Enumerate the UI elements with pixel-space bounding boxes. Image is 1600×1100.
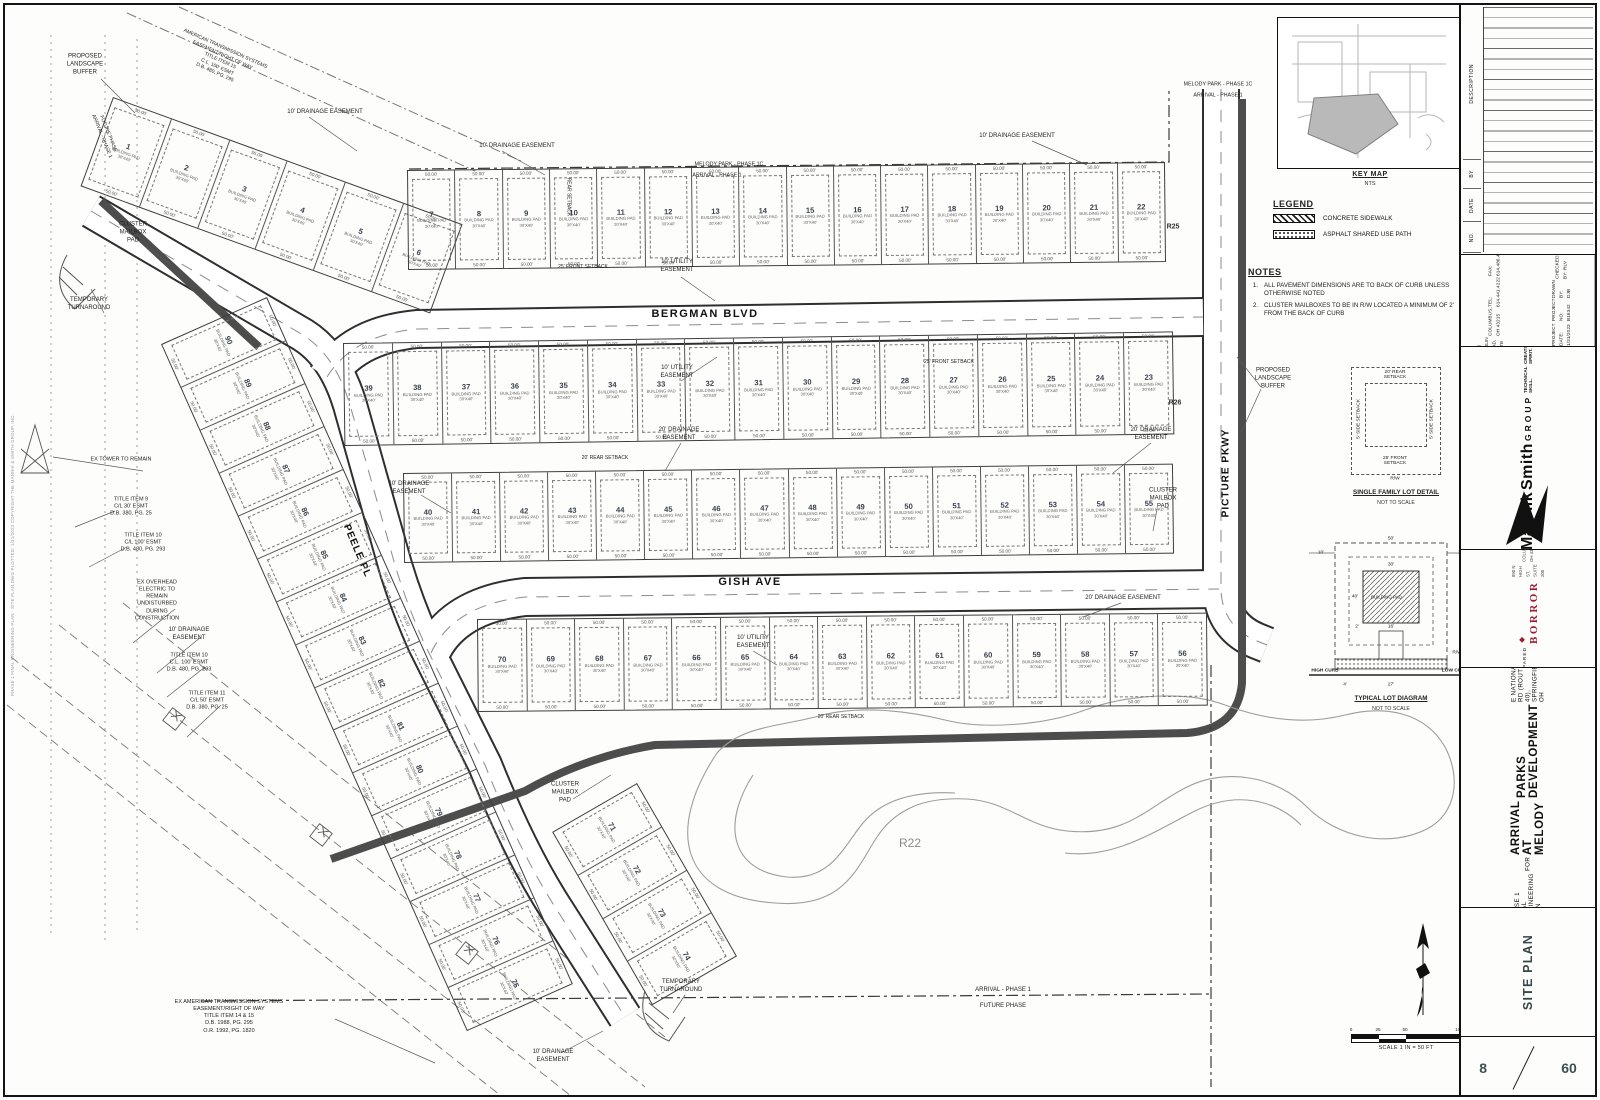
lot-dimension: 50.00' xyxy=(898,167,910,172)
lot-28: 50.00'28BUILDING PAD30'X40'50.00' xyxy=(880,336,930,438)
building-pad: 39BUILDING PAD30'X40' xyxy=(348,352,389,437)
plot-stamp-text: PHASE 1 FINAL ENGINEERING PLAN - SITE PL… xyxy=(10,414,15,696)
lot-dimension: 50.00' xyxy=(1030,616,1042,621)
basin-contours xyxy=(688,696,1455,904)
scale-bar: 02550100 SCALE 1 IN = 50 FT xyxy=(1351,1027,1461,1051)
typical-lot-scale: NOT TO SCALE xyxy=(1372,706,1410,712)
lot-dimension: 50.00' xyxy=(558,436,570,441)
building-pad-size: 30'X40' xyxy=(1093,389,1107,394)
lot-number: 44 xyxy=(616,506,625,514)
borror-shield-icon: ◆ xyxy=(1518,633,1526,644)
lot-dimension: 50.00' xyxy=(1087,165,1099,170)
lot-12: 50.00'12BUILDING PAD30'X40'50.00' xyxy=(645,168,693,266)
lot-number: 52 xyxy=(1000,501,1009,509)
rev-header: DATE xyxy=(1463,189,1481,222)
firm-field: CHECKED BY: RLV xyxy=(1553,255,1568,279)
lot-dimension: 50.00' xyxy=(851,167,863,172)
building-pad: 65BUILDING PAD30'X40' xyxy=(725,626,765,701)
lot-27: 50.00'27BUILDING PAD30'X40'50.00' xyxy=(929,335,979,437)
lot-38: 50.00'38BUILDING PAD30'X40'50.00' xyxy=(393,343,443,445)
lot-number: 51 xyxy=(952,502,961,510)
typical-lot-diagram: 50' 10' 10' 30' 40' BUILDING PAD 2' 16' … xyxy=(1305,535,1477,721)
building-pad-size: 30'X40' xyxy=(469,522,483,527)
lot-dimension: 50.00' xyxy=(662,169,674,174)
lot-53: 50.00'53BUILDING PAD30'X40'50.00' xyxy=(1029,466,1078,555)
project-title-block: PHASE 1 FINAL ENGINEERING PLAN FOR ARRIV… xyxy=(1461,668,1595,908)
building-pad-size: 30'X40' xyxy=(1087,218,1101,223)
building-pad: 14BUILDING PAD30'X40' xyxy=(743,175,782,257)
annotation: CLUSTER MAILBOX PAD xyxy=(551,781,579,804)
concrete-swatch xyxy=(1273,214,1315,223)
legend-title: LEGEND xyxy=(1273,199,1463,209)
lot-dimension: 50.00' xyxy=(422,555,434,560)
street-label-bergman: BERGMAN BLVD xyxy=(651,308,758,320)
lot-row-71-74: 50.00'71BUILDING PAD30'X40'50.00'50.00'7… xyxy=(552,783,737,1005)
building-pad: 24BUILDING PAD30'X40' xyxy=(1080,341,1121,426)
borror-address-1: 890 N HIGH ST, SUITE 200 xyxy=(1510,565,1546,578)
lot-dimension: 50.00' xyxy=(1143,427,1155,432)
building-pad-size: 30'X40' xyxy=(996,390,1010,395)
building-pad-size: 30'X40' xyxy=(517,521,531,526)
sheet-title-wrap: SITE PLAN xyxy=(1465,912,1591,1032)
lot-44: 50.00'44BUILDING PAD30'X40'50.00' xyxy=(596,471,645,560)
firm-address: 1160 DUBLIN ROAD, SUITE 100COLUMBUS, OH … xyxy=(1461,255,1528,346)
lot-dimension: 50.00' xyxy=(496,621,508,626)
lot-dimension: 50.00' xyxy=(1088,255,1100,260)
key-map xyxy=(1277,17,1465,169)
lot-number: 20 xyxy=(1042,204,1051,212)
lot-dimension: 50.00' xyxy=(470,555,482,560)
project-line-3: ARRIVAL AT MELODY xyxy=(1510,800,1546,854)
rev-header-label: DESCRIPTION xyxy=(1469,64,1475,104)
building-pad: 70BUILDING PAD30'X40' xyxy=(482,628,522,703)
building-pad: 22BUILDING PAD30'X40' xyxy=(1122,171,1161,253)
lot-63: 50.00'63BUILDING PAD30'X40'50.00' xyxy=(818,617,867,708)
lot-32: 50.00'32BUILDING PAD30'X40'50.00' xyxy=(685,339,735,441)
annotation: PROPOSED LANDSCAPE BUFFER xyxy=(67,53,103,76)
lot-54: 50.00'54BUILDING PAD30'X40'50.00' xyxy=(1077,465,1126,554)
lot-dimension: 50.00' xyxy=(998,468,1010,473)
building-pad-size: 30'X40' xyxy=(709,221,723,226)
lot-49: 50.00'49BUILDING PAD30'X40'50.00' xyxy=(837,468,886,557)
building-pad: 32BUILDING PAD30'X40' xyxy=(689,347,730,432)
lot-8: 50.00'8BUILDING PAD30'X40'50.00' xyxy=(455,170,503,268)
lot-dimension: 50.00' xyxy=(662,472,674,477)
building-pad: 57BUILDING PAD30'X40' xyxy=(1114,622,1154,697)
building-pad: 45BUILDING PAD30'X40' xyxy=(648,479,688,551)
lot-dimension: 50.00' xyxy=(709,169,721,174)
building-pad-size: 30'X40' xyxy=(519,223,533,228)
building-pad: 7BUILDING PAD30'X40' xyxy=(412,179,451,261)
building-pad-size: 30'X40' xyxy=(758,518,772,523)
lot-48: 50.00'48BUILDING PAD30'X40'50.00' xyxy=(788,469,837,558)
lot-dimension: 50.00' xyxy=(656,434,668,439)
building-pad-size: 30'X40' xyxy=(803,221,817,226)
mannik-swoosh-icon xyxy=(1498,483,1558,545)
lot-number: 28 xyxy=(901,377,910,385)
annotation: TITLE ITEM 11 C/L 50' ESMT D.B. 380, PG.… xyxy=(186,690,228,711)
lot-dimension: 50.00' xyxy=(1095,547,1107,552)
lot-detail-scale: NOT TO SCALE xyxy=(1377,500,1415,506)
lot-dimension: 50.00' xyxy=(654,340,666,345)
lot-dimension: 50.00' xyxy=(1031,700,1043,705)
lot-number: 21 xyxy=(1090,203,1099,211)
north-arrow xyxy=(1403,923,1443,1028)
lot-dimension: 50.00' xyxy=(993,166,1005,171)
building-pad-size: 30'X40' xyxy=(425,224,439,229)
lot-number: 58 xyxy=(1081,651,1090,659)
lot-37: 50.00'37BUILDING PAD30'X40'50.00' xyxy=(442,342,492,444)
sheet-number: 8 xyxy=(1479,1060,1487,1076)
lot-number: 49 xyxy=(856,503,865,511)
firm-address-line: FAX: 614.486.4387 xyxy=(1487,255,1502,276)
lot-dimension: 50.00' xyxy=(496,704,508,709)
lot-dimension: 50.00' xyxy=(1079,699,1091,704)
lot-dimension: 50.00' xyxy=(663,552,675,557)
annotation: 20' REAR SETBACK xyxy=(582,455,629,462)
dim-40: 40' xyxy=(1352,595,1358,600)
lot-dimension: 50.00' xyxy=(885,701,897,706)
lot-number: 68 xyxy=(595,655,604,663)
lot-number: 56 xyxy=(1178,650,1187,658)
lot-dimension: 50.00' xyxy=(412,438,424,443)
borror-logo-block: PREPARED FOR ◆ BORROR 890 N HIGH ST, SUI… xyxy=(1465,554,1591,663)
lot-dimension: 50.00' xyxy=(614,170,626,175)
lot-detail-setback-line xyxy=(1365,383,1427,447)
lot-58: 50.00'58BUILDING PAD30'X40'50.00' xyxy=(1061,614,1110,705)
lot-number: 25 xyxy=(1047,375,1056,383)
lot-number: 45 xyxy=(664,505,673,513)
annotation: EX OVERHEAD ELECTRIC TO REMAIN UNDISTURB… xyxy=(135,580,179,623)
lot-dimension: 50.00' xyxy=(802,432,814,437)
building-pad: 35BUILDING PAD30'X40' xyxy=(543,349,584,434)
lot-dimension: 50.00' xyxy=(997,429,1009,434)
lot-number: 63 xyxy=(838,653,847,661)
lot-dimension: 50.00' xyxy=(899,431,911,436)
lot-dimension: 50.00' xyxy=(903,549,915,554)
building-pad-size: 30'X40' xyxy=(662,519,676,524)
lot-dimension: 50.00' xyxy=(606,341,618,346)
lot-row-1-6: 50.00'1BUILDING PAD30'X40'50.00'50.00'2B… xyxy=(81,97,463,314)
building-pad-size: 30'X40' xyxy=(472,224,486,229)
building-pad: 36BUILDING PAD30'X40' xyxy=(494,350,535,435)
lot-number: 70 xyxy=(498,656,507,664)
lot-number: 15 xyxy=(806,206,815,214)
lot-detail-caption: SINGLE FAMILY LOT DETAIL xyxy=(1353,489,1439,496)
lot-dimension: 50.00' xyxy=(759,551,771,556)
lot-29: 50.00'29BUILDING PAD30'X40'50.00' xyxy=(832,336,882,438)
building-pad: 40BUILDING PAD30'X40' xyxy=(408,482,448,554)
building-pad: 28BUILDING PAD30'X40' xyxy=(884,344,925,429)
lot-47: 50.00'47BUILDING PAD30'X40'50.00' xyxy=(740,469,789,558)
building-pad: 47BUILDING PAD30'X40' xyxy=(745,478,785,550)
lot-dimension: 50.00' xyxy=(641,619,653,624)
lot-number: 43 xyxy=(568,506,577,514)
lot-42: 50.00'42BUILDING PAD30'X40'50.00' xyxy=(500,472,549,561)
lot-60: 50.00'60BUILDING PAD30'X40'50.00' xyxy=(964,615,1013,706)
lot-dimension: 50.00' xyxy=(758,471,770,476)
annotation: 10' DRAINAGE EASEMENT xyxy=(479,143,555,151)
annotation: AMERICAN TRANSMISSION SYSTEMS EASEMENT/R… xyxy=(172,28,268,95)
lot-50: 50.00'50BUILDING PAD30'X40'50.00' xyxy=(885,468,934,557)
lot-41: 50.00'41BUILDING PAD30'X40'50.00' xyxy=(452,473,501,562)
lot-dimension: 50.00' xyxy=(788,702,800,707)
lot-43: 50.00'43BUILDING PAD30'X40'50.00' xyxy=(548,472,597,561)
building-pad-size: 30'X40' xyxy=(806,518,820,523)
lot-dimension: 50.00' xyxy=(1046,429,1058,434)
lot-number: 7 xyxy=(429,210,433,218)
building-pad-label: BUILDING PAD xyxy=(1371,594,1411,599)
lot-57: 50.00'57BUILDING PAD30'X40'50.00' xyxy=(1110,614,1159,705)
project-line-4: PARKS DEVELOPMENT xyxy=(1516,704,1540,798)
annotation: TITLE ITEM 10 C.L. 100' ESMT D.B. 480, P… xyxy=(167,652,212,673)
lot-number: 46 xyxy=(712,505,721,513)
building-pad: 34BUILDING PAD30'X40' xyxy=(592,348,633,433)
lot-11: 50.00'11BUILDING PAD30'X40'50.00' xyxy=(597,169,645,267)
lot-33: 50.00'33BUILDING PAD30'X40'50.00' xyxy=(637,339,687,441)
building-pad-size: 30'X40' xyxy=(614,222,628,227)
lot-dimension: 50.00' xyxy=(1142,334,1154,339)
notes: NOTES 1.ALL PAVEMENT DIMENSIONS ARE TO B… xyxy=(1248,267,1464,321)
logo-line-3: GROUP xyxy=(1523,395,1533,441)
building-pad-size: 30'X40' xyxy=(756,221,770,226)
annotation: FUTURE PHASE xyxy=(980,1003,1026,1011)
building-pad-size: 30'X40' xyxy=(884,667,898,672)
building-pad: 55BUILDING PAD30'X40' xyxy=(1129,473,1169,545)
lot-dimension: 50.00' xyxy=(752,339,764,344)
lot-dimension: 50.00' xyxy=(946,257,958,262)
note-text: CLUSTER MAILBOXES TO BE IN R/W LOCATED A… xyxy=(1264,302,1464,319)
lot-dimension: 50.00' xyxy=(1177,699,1189,704)
lot-dimension: 50.00' xyxy=(362,345,374,350)
lot-number: 38 xyxy=(413,384,422,392)
lot-dimension: 50.00' xyxy=(704,434,716,439)
building-pad: 59BUILDING PAD30'X40' xyxy=(1017,623,1057,698)
building-pad: 31BUILDING PAD30'X40' xyxy=(738,346,779,431)
lot-number: 67 xyxy=(644,655,653,663)
lot-dimension: 50.00' xyxy=(459,343,471,348)
lot-number: 69 xyxy=(546,655,555,663)
firm-field: PROJECT DATE: 1/31/2023 xyxy=(1549,322,1572,346)
building-pad-size: 30'X40' xyxy=(1030,665,1044,670)
street-label-gish: GISH AVE xyxy=(718,576,781,588)
lot-number: 50 xyxy=(904,502,913,510)
building-pad-size: 30'X40' xyxy=(849,392,863,397)
lot-30: 50.00'30BUILDING PAD30'X40'50.00' xyxy=(783,337,833,439)
building-pad: 44BUILDING PAD30'X40' xyxy=(600,479,640,551)
lot-66: 50.00'66BUILDING PAD30'X40'50.00' xyxy=(672,618,721,709)
building-pad-size: 30'X40' xyxy=(654,395,668,400)
building-pad-size: 30'X40' xyxy=(1078,665,1092,670)
lot-number: 55 xyxy=(1145,499,1154,507)
building-pad-size: 30'X40' xyxy=(1094,514,1108,519)
lot-61: 50.00'61BUILDING PAD30'X40'50.00' xyxy=(915,616,964,707)
building-pad: 9BUILDING PAD30'X40' xyxy=(507,178,546,260)
lot-number: 54 xyxy=(1097,500,1106,508)
lot-15: 50.00'15BUILDING PAD30'X40'50.00' xyxy=(786,167,834,265)
lot-21: 50.00'21BUILDING PAD30'X40'50.00' xyxy=(1070,164,1118,262)
lot-dimension: 50.00' xyxy=(854,469,866,474)
lot-dimension: 50.00' xyxy=(836,618,848,623)
lot-59: 50.00'59BUILDING PAD30'X40'50.00' xyxy=(1013,615,1062,706)
lot-dimension: 50.00' xyxy=(662,260,674,265)
annotation: 10' DRAINAGE EASEMENT xyxy=(169,627,210,643)
firm-info: 1160 DUBLIN ROAD, SUITE 100COLUMBUS, OH … xyxy=(1461,255,1595,347)
rev-header: DESCRIPTION xyxy=(1463,9,1481,160)
street-label-picture: PICTURE PKWY xyxy=(1221,429,1232,518)
building-pad: 38BUILDING PAD30'X40' xyxy=(397,351,438,436)
front-setback-label: 25' FRONT SETBACK xyxy=(1383,456,1407,466)
lot-dimension: 50.00' xyxy=(642,703,654,708)
building-pad-size: 30'X40' xyxy=(947,391,961,396)
building-pad-size: 30'X40' xyxy=(606,395,620,400)
single-family-lot-detail: 20' REAR SETBACK 5' SIDE SETBACK 5' SIDE… xyxy=(1321,357,1471,515)
annotation: MELODY PARK - PHASE 1C xyxy=(1184,82,1253,89)
building-pad-size: 30'X40' xyxy=(690,668,704,673)
lot-number: 66 xyxy=(692,654,701,662)
building-pad: 52BUILDING PAD30'X40' xyxy=(985,475,1025,547)
prepared-for-block: PREPARED FOR ◆ BORROR 890 N HIGH ST, SUI… xyxy=(1461,550,1595,668)
lot-dimension: 50.00' xyxy=(691,703,703,708)
lot-45: 50.00'45BUILDING PAD30'X40'50.00' xyxy=(644,470,693,559)
project-line-2: FOR xyxy=(1525,857,1532,871)
lot-dimension: 50.00' xyxy=(567,554,579,559)
lot-65: 50.00'65BUILDING PAD30'X40'50.00' xyxy=(721,617,770,708)
lot-number: 17 xyxy=(900,205,909,213)
sheet-title: SITE PLAN xyxy=(1521,934,1535,1010)
building-pad-size: 30'X40' xyxy=(950,516,964,521)
annotation: 10' DRAINAGE EASEMENT xyxy=(287,109,363,117)
sheet-number-block: 8 60 xyxy=(1461,1037,1595,1097)
lot-dimension: 50.00' xyxy=(1047,548,1059,553)
building-pad: 50BUILDING PAD30'X40' xyxy=(889,476,929,548)
lot-number: 12 xyxy=(664,208,673,216)
annotation: ARRIVAL - PHASE 1 xyxy=(1193,93,1242,100)
basin-label: R22 xyxy=(899,836,921,850)
lot-dimension: 50.00' xyxy=(1127,615,1139,620)
lot-16: 50.00'16BUILDING PAD30'X40'50.00' xyxy=(834,166,882,264)
lot-dimension: 50.00' xyxy=(934,701,946,706)
annotation: PROPOSED LANDSCAPE BUFFER xyxy=(1255,367,1291,390)
lot-51: 50.00'51BUILDING PAD30'X40'50.00' xyxy=(933,467,982,556)
building-pad: 10BUILDING PAD30'X40' xyxy=(554,177,593,259)
key-map-title: KEY MAP xyxy=(1352,171,1387,178)
lot-dimension: 50.00' xyxy=(996,336,1008,341)
building-pad: 66BUILDING PAD30'X40' xyxy=(676,626,716,701)
building-pad: 61BUILDING PAD30'X40' xyxy=(919,624,959,699)
annotation: R25 xyxy=(1167,222,1180,231)
lot-26: 50.00'26BUILDING PAD30'X40'50.00' xyxy=(978,334,1028,436)
lot-dimension: 50.00' xyxy=(520,171,532,176)
building-pad: 19BUILDING PAD30'X40' xyxy=(980,173,1019,255)
lot-55: 50.00'55BUILDING PAD30'X40'50.00' xyxy=(1125,465,1173,554)
project-title: PHASE 1 FINAL ENGINEERING PLAN FOR ARRIV… xyxy=(1465,672,1591,903)
lot-dimension: 50.00' xyxy=(710,259,722,264)
lot-dimension: 50.00' xyxy=(421,475,433,480)
lot-number: 31 xyxy=(754,379,763,387)
annotation: TITLE ITEM 10 C/L 100' ESMT D.B. 480, PG… xyxy=(121,532,166,553)
lot-row-56-70: 50.00'70BUILDING PAD30'X40'50.00'50.00'6… xyxy=(477,613,1208,712)
scale-tick: 0 xyxy=(1350,1027,1353,1032)
building-pad: 15BUILDING PAD30'X40' xyxy=(791,175,830,257)
scale-text: SCALE 1 IN = 50 FT xyxy=(1351,1045,1461,1051)
lot-dimension: 50.00' xyxy=(837,701,849,706)
lot-dimension: 50.00' xyxy=(1135,164,1147,169)
revision-table: DESCRIPTIONBYDATENO. xyxy=(1461,5,1595,255)
lot-number: 8 xyxy=(477,210,481,218)
lot-dimension: 50.00' xyxy=(473,262,485,267)
building-pad: 60BUILDING PAD30'X40' xyxy=(968,624,1008,699)
lot-number: 39 xyxy=(364,385,373,393)
lot-36: 50.00'36BUILDING PAD30'X40'50.00' xyxy=(490,341,540,443)
plot-stamp: PHASE 1 FINAL ENGINEERING PLAN - SITE PL… xyxy=(10,255,15,855)
lot-number: 24 xyxy=(1096,374,1105,382)
lot-number: 29 xyxy=(852,378,861,386)
lot-69: 50.00'69BUILDING PAD30'X40'50.00' xyxy=(527,619,576,710)
lot-number: 9 xyxy=(524,209,528,217)
lot-dimension: 50.00' xyxy=(1143,547,1155,552)
lot-number: 60 xyxy=(984,652,993,660)
scale-bar-bottom xyxy=(1351,1039,1461,1044)
firm-address-line: 1160 DUBLIN ROAD, SUITE 100 xyxy=(1475,337,1513,347)
building-pad-size: 30'X40' xyxy=(495,670,509,675)
building-pad: 23BUILDING PAD30'X40' xyxy=(1128,341,1169,426)
building-pad-size: 30'X40' xyxy=(1040,218,1054,223)
lot-dimension: 50.00' xyxy=(518,554,530,559)
lot-number: 11 xyxy=(617,208,625,216)
lot-dimension: 50.00' xyxy=(1044,335,1056,340)
building-pad-size: 30'X40' xyxy=(898,220,912,225)
lot-dimension: 50.00' xyxy=(593,620,605,625)
lot-dimension: 50.00' xyxy=(426,262,438,267)
lot-56: 50.00'56BUILDING PAD30'X40'50.00' xyxy=(1158,614,1206,705)
key-map-scale: NTS xyxy=(1365,181,1376,187)
building-pad: 64BUILDING PAD30'X40' xyxy=(774,625,814,700)
building-pad-size: 30'X40' xyxy=(1135,217,1149,222)
project-fields: PROJECT DATE: 1/31/2023PROJECT NO: B1634… xyxy=(1528,255,1596,346)
dim-50: 50' xyxy=(1388,537,1394,542)
lot-dimension: 50.00' xyxy=(509,436,521,441)
lot-number: 34 xyxy=(608,381,617,389)
asphalt-swatch xyxy=(1273,230,1315,239)
lot-dimension: 50.00' xyxy=(472,171,484,176)
building-pad-size: 30'X40' xyxy=(1142,388,1156,393)
side-setback-left-label: 5' SIDE SETBACK xyxy=(1357,399,1362,439)
building-pad-size: 30'X40' xyxy=(614,520,628,525)
rear-setback-label: 20' REAR SETBACK xyxy=(1384,370,1406,380)
lot-dimension: 50.00' xyxy=(1040,165,1052,170)
building-pad: 54BUILDING PAD30'X40' xyxy=(1081,474,1121,546)
lot-dimension: 50.00' xyxy=(806,470,818,475)
prepared-for-label: PREPARED FOR xyxy=(1523,647,1533,668)
building-pad: 12BUILDING PAD30'X40' xyxy=(649,176,688,258)
lot-13: 50.00'13BUILDING PAD30'X40'50.00' xyxy=(692,168,740,266)
lot-dimension: 50.00' xyxy=(703,340,715,345)
legend-items: CONCRETE SIDEWALKASPHALT SHARED USE PATH xyxy=(1273,214,1463,239)
building-pad-size: 30'X40' xyxy=(703,394,717,399)
lot-22: 50.00'22BUILDING PAD30'X40'50.00' xyxy=(1118,163,1165,261)
building-pad: 21BUILDING PAD30'X40' xyxy=(1074,172,1113,254)
building-pad: 8BUILDING PAD30'X40' xyxy=(459,178,498,260)
lot-dimension: 50.00' xyxy=(1128,699,1140,704)
lot-number: 14 xyxy=(759,207,768,215)
lot-dimension: 50.00' xyxy=(756,168,768,173)
building-pad-size: 30'X40' xyxy=(898,391,912,396)
annotation: 10' DRAINAGE EASEMENT xyxy=(533,1049,574,1065)
typical-lot-caption: TYPICAL LOT DIAGRAM xyxy=(1355,695,1428,702)
note-item: 2.CLUSTER MAILBOXES TO BE IN R/W LOCATED… xyxy=(1248,302,1464,319)
lot-dimension: 50.00' xyxy=(902,469,914,474)
